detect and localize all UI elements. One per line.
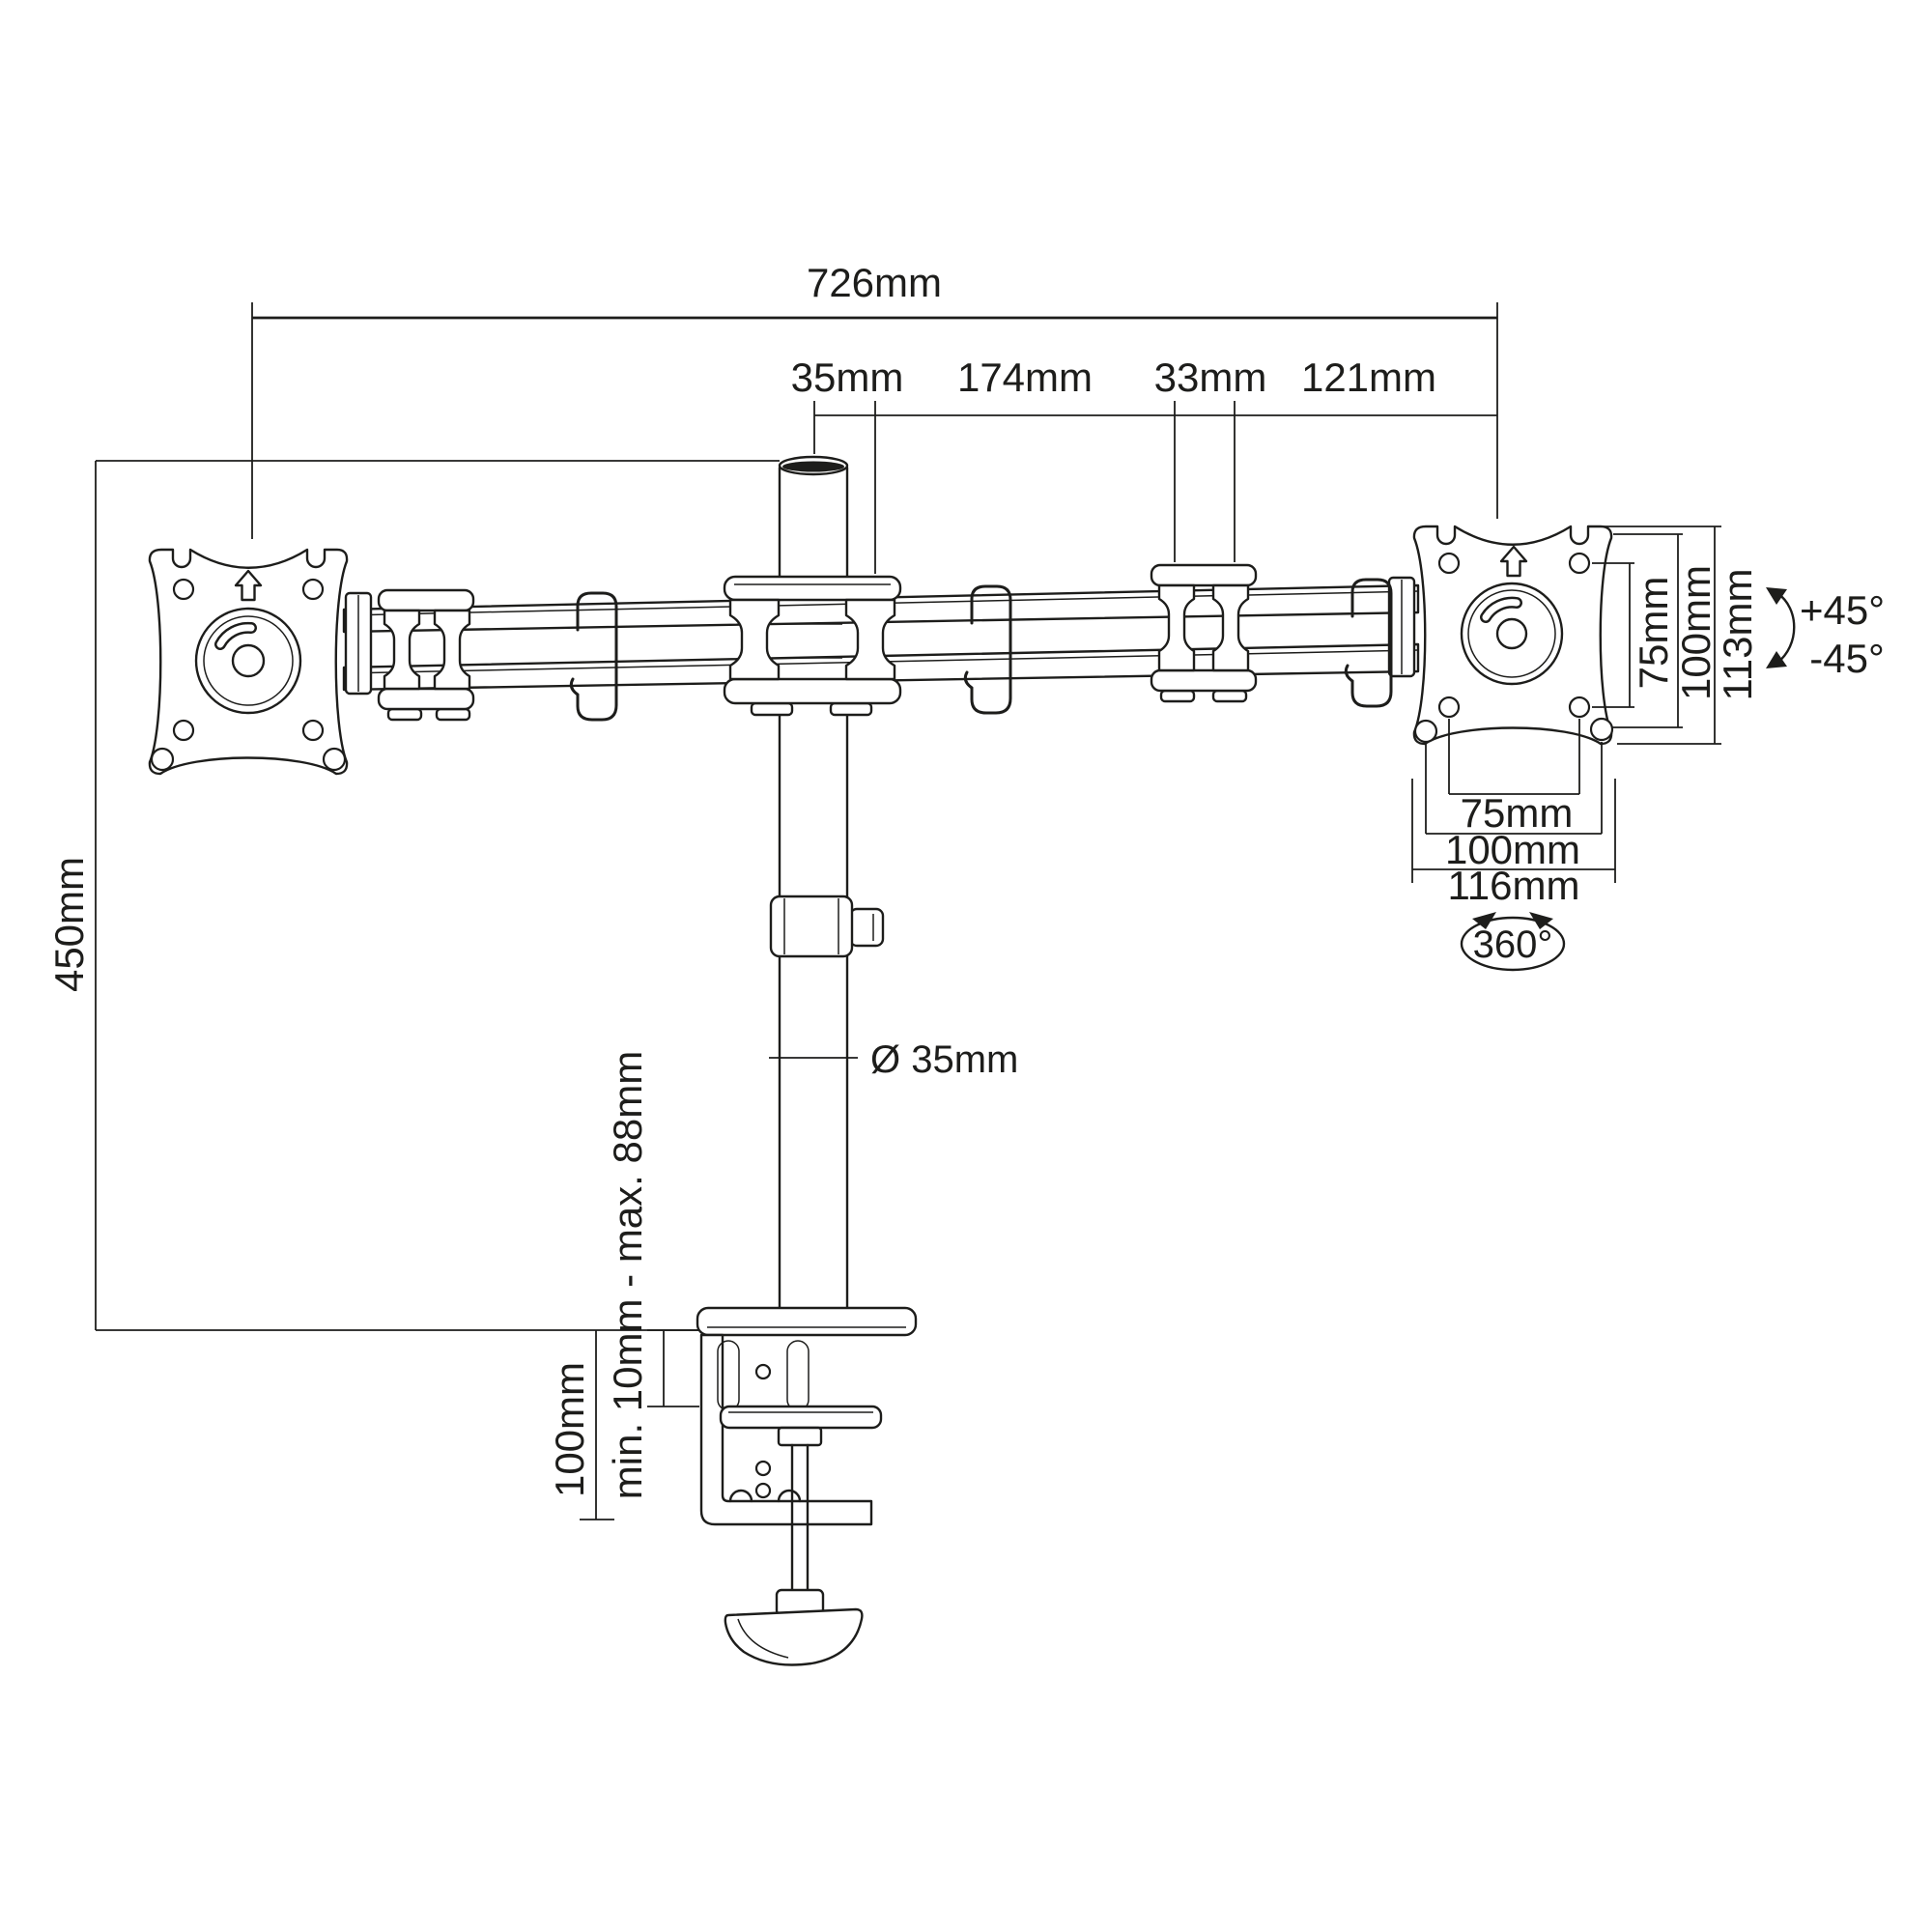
dim-label-tilt-up: +45°	[1800, 587, 1885, 633]
dim-label-tilt-down: -45°	[1809, 636, 1885, 681]
dim-label-swivel: 360°	[1473, 923, 1553, 966]
vesa-plate-right	[1414, 526, 1612, 744]
elbow-joint-right	[1151, 565, 1256, 701]
pole-cap	[782, 462, 844, 472]
clamp-slot	[787, 1341, 809, 1410]
dim-label-vesa-v-outer: 100mm	[1673, 565, 1719, 700]
dim-label-vesa-v-inner: 75mm	[1631, 577, 1676, 690]
tilt-symbol: +45° -45°	[1766, 587, 1885, 681]
plate-hinge-right	[1389, 578, 1414, 676]
dim-label-plate-height: 113mm	[1715, 569, 1760, 701]
center-joint	[724, 577, 900, 715]
dim-label-arm-length: 174mm	[957, 355, 1093, 400]
clamp-nut	[779, 1428, 821, 1445]
tilt-arrow-up-icon	[1766, 587, 1787, 605]
dim-pole-diameter: Ø 35mm	[769, 1038, 1018, 1081]
tilt-arrow-down-icon	[1766, 651, 1787, 668]
elbow-joint-left	[379, 590, 473, 720]
plate-hinge-left	[346, 593, 371, 694]
dim-clamp-range: min. 10mm - max. 88mm	[605, 1051, 699, 1499]
dim-label-pole-diameter: Ø 35mm	[870, 1038, 1018, 1081]
technical-drawing-page: 726mm 35mm 174mm 33mm 121mm 450mm 100mm …	[0, 0, 1932, 1932]
dim-label-joint-width: 33mm	[1154, 355, 1267, 400]
dim-arm-segments: 35mm 174mm 33mm 121mm	[791, 355, 1497, 574]
monitor-arm-diagram: 726mm 35mm 174mm 33mm 121mm 450mm 100mm …	[0, 0, 1932, 1932]
height-collar	[771, 896, 883, 956]
dim-label-pole-width: 35mm	[791, 355, 904, 400]
dim-label-plate-width: 116mm	[1448, 863, 1580, 908]
dim-label-end-length: 121mm	[1301, 355, 1436, 400]
clamp-top-plate	[697, 1308, 916, 1335]
dim-label-clamp-range: min. 10mm - max. 88mm	[605, 1051, 650, 1499]
rotation-symbol: 360°	[1462, 912, 1564, 970]
tilt-arc-icon	[1777, 593, 1794, 663]
clamp-middle-plate	[721, 1406, 881, 1428]
dim-label-height: 450mm	[46, 857, 92, 992]
dim-label-total-width: 726mm	[807, 260, 942, 305]
dim-vesa-horizontal: 75mm 100mm 116mm	[1412, 719, 1615, 908]
dim-label-clamp-height: 100mm	[547, 1362, 592, 1497]
desk-clamp	[697, 1308, 916, 1665]
clamp-knob-handle	[725, 1609, 863, 1665]
vesa-plate-left	[150, 550, 347, 774]
dim-vesa-vertical: 75mm 100mm 113mm	[1592, 526, 1760, 744]
